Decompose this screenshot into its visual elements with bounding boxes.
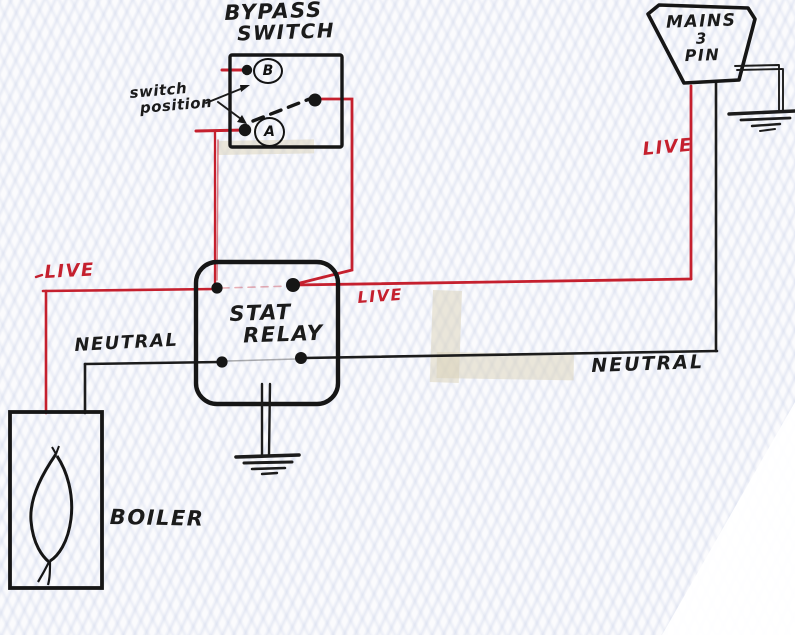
wire-live-left-tick — [36, 275, 42, 277]
bypass-switch-title: BYPASS SWITCH — [224, 0, 335, 45]
mains-earth-bar-3 — [752, 124, 780, 126]
mains-earth-bar-1 — [729, 111, 795, 114]
relay-earth-bar-1 — [236, 455, 299, 457]
boiler-element-bottom-tails — [38, 561, 50, 585]
switch-terminal-b-label: B — [263, 63, 274, 79]
diagram-artwork — [0, 0, 795, 635]
neutral-label-right: NEUTRAL — [591, 353, 704, 377]
stat-relay-title: STAT RELAY — [229, 300, 324, 347]
mains-earth-bar-4 — [760, 129, 775, 131]
switch-terminal-b-circle: B — [253, 58, 283, 84]
switch-terminal-right-dot — [309, 94, 322, 107]
live-label-center: LIVE — [357, 287, 404, 307]
boiler-element — [31, 446, 72, 585]
switch-position-annotation: switch position — [129, 79, 213, 117]
boiler-element-top-fork — [52, 446, 59, 454]
switch-terminal-a-circle: A — [254, 117, 285, 147]
boiler-element-left — [31, 454, 56, 562]
wiring-diagram: BYPASS SWITCH switch position B A MAINS … — [0, 0, 795, 635]
relay-earth-bar-2 — [244, 462, 292, 463]
wire-live-left-horizontal — [43, 289, 216, 291]
mains-plug-title: MAINS 3 PIN — [660, 12, 744, 65]
relay-earth-wire — [262, 384, 270, 455]
relay-terminal-top-right-dot — [286, 278, 300, 292]
relay-contact-top-dashed — [222, 286, 291, 288]
stat-relay-title-line2: RELAY — [243, 322, 324, 347]
mains-earth-bar-2 — [741, 118, 790, 120]
relay-terminal-bottom-left-dot — [216, 356, 227, 367]
wire-live-center-horizontal — [294, 279, 691, 285]
paper-corner-cut — [662, 402, 795, 635]
bypass-switch-title-line2: SWITCH — [237, 20, 336, 44]
switch-terminal-b-dot — [242, 65, 252, 75]
wire-live-terminal-a-stub — [196, 130, 245, 131]
relay-contact-bottom-faint — [227, 359, 296, 361]
switch-terminal-a-label: A — [264, 124, 275, 140]
boiler-label: BOILER — [110, 506, 205, 530]
annotation-arrows — [206, 85, 250, 124]
live-label-left: LIVE — [44, 261, 95, 283]
wire-neutral-left-horizontal — [85, 362, 220, 364]
arrow-to-terminal-b-head — [240, 85, 250, 92]
switch-terminal-a-dot — [239, 124, 251, 136]
relay-earth-bar-3 — [252, 468, 285, 469]
boiler-element-right — [50, 456, 72, 561]
relay-earth — [236, 384, 299, 474]
wire-live-switch-a-vertical-overdraw — [217, 140, 218, 280]
mains-title-line3: PIN — [661, 46, 744, 66]
relay-terminal-bottom-right-dot — [295, 352, 307, 364]
boiler-box — [10, 412, 102, 588]
relay-earth-bar-4 — [262, 473, 277, 474]
relay-terminal-top-left-dot — [211, 282, 222, 293]
